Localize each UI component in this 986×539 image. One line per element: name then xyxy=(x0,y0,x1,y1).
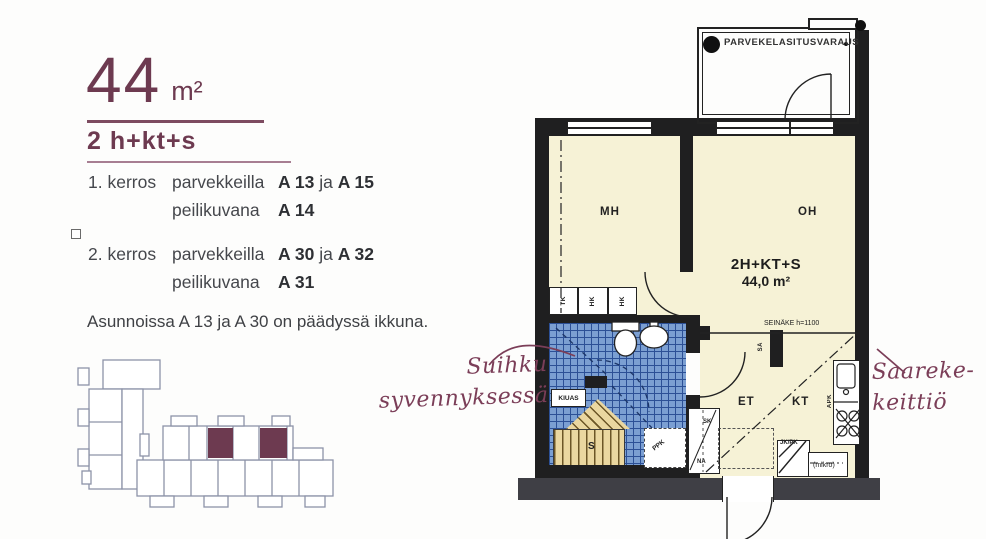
area-headline: 44 m² xyxy=(86,50,203,111)
floor-1-word: parvekkeilla xyxy=(172,172,278,193)
wall-bottom xyxy=(518,478,880,500)
closet-hk2: HK xyxy=(608,287,637,315)
balcony-corner-post xyxy=(855,20,866,31)
floor-1-mirror-code: A 14 xyxy=(278,200,374,221)
jkpk-label: JK/PK xyxy=(780,440,798,446)
list-bullet-square xyxy=(71,229,81,239)
apartment-title: 2H+KT+S 44,0 m² xyxy=(706,256,826,289)
annotation-kitchen-line1: Saareke- xyxy=(871,355,974,388)
hall-floor xyxy=(680,272,693,315)
balcony-railing-bar xyxy=(808,18,858,30)
closet-hk1: HK xyxy=(578,287,607,315)
closet-row: TK HK HK xyxy=(549,287,637,315)
closet-tk: TK xyxy=(549,287,578,315)
floor-2-word: parvekkeilla xyxy=(172,244,278,265)
divider-rule-bottom xyxy=(87,161,291,163)
floor-1-rows: 1. kerros parvekkeilla A 13 ja A 15 peil… xyxy=(88,172,374,221)
apk-label: APK xyxy=(827,394,833,408)
divider-rule-top xyxy=(87,120,264,123)
highlighted-unit-2 xyxy=(260,428,287,458)
wall-oh-et-junction xyxy=(693,326,710,340)
kitchen-counter xyxy=(833,360,860,445)
annotation-kitchen-line2: keittiö xyxy=(872,386,975,419)
na-label: NA xyxy=(697,459,706,465)
annotation-shower: Suihku syvennyksessä xyxy=(367,349,549,417)
sk-label: SK xyxy=(703,419,711,425)
kiuas-box: KIUAS xyxy=(551,389,586,407)
site-plan xyxy=(58,352,350,514)
balcony-column xyxy=(703,36,720,53)
highlighted-unit-1 xyxy=(208,428,233,458)
kiuas-label: KIUAS xyxy=(558,395,578,402)
entry-door-arc xyxy=(725,497,772,539)
floor-1-word2: peilikuvana xyxy=(172,200,278,221)
end-window-note: Asunnoissa A 13 ja A 30 on päädyssä ikku… xyxy=(87,312,428,332)
hall-reservation-dashed xyxy=(718,428,774,469)
sa-label: SÄ xyxy=(758,342,764,351)
entry-door-threshold xyxy=(722,476,774,502)
area-value: 44 xyxy=(86,50,161,111)
apartment-type-label: 2 h+kt+s xyxy=(87,127,196,156)
balcony-label: PARVEKELASITUSVARAUS xyxy=(724,37,859,48)
area-unit: m² xyxy=(171,76,202,107)
floor-2-mirror-code: A 31 xyxy=(278,272,374,293)
room-label-kt: KT xyxy=(792,396,809,408)
floor-1-label: 1. kerros xyxy=(88,172,172,193)
wall-left xyxy=(535,118,549,478)
floor-1-codes: A 13 ja A 15 xyxy=(278,172,374,193)
brochure-page: 44 m² 2 h+kt+s 1. kerros parvekkeilla A … xyxy=(0,0,986,539)
washer-reservation-box xyxy=(644,428,686,468)
wall-shower-stub xyxy=(585,376,607,388)
mikro-label: (mikro) xyxy=(813,462,835,469)
wall-bath-top xyxy=(549,315,686,323)
apartment-code: 2H+KT+S xyxy=(706,256,826,273)
room-label-et: ET xyxy=(738,396,755,408)
room-label-mh: MH xyxy=(600,206,620,218)
partition-label: SEINÄKE h=1100 xyxy=(764,320,819,327)
apartment-area: 44,0 m² xyxy=(706,273,826,289)
floor-2-label: 2. kerros xyxy=(88,244,172,265)
window-mh xyxy=(567,121,652,135)
balcony-door-threshold xyxy=(790,121,834,135)
wall-sa-stub xyxy=(770,330,783,367)
room-label-oh: OH xyxy=(798,206,817,218)
annotation-kitchen: Saareke- keittiö xyxy=(871,355,975,419)
floor-2-rows: 2. kerros parvekkeilla A 30 ja A 32 peil… xyxy=(88,244,374,293)
annotation-shower-line2: syvennyksessä xyxy=(368,380,549,417)
room-label-sauna: S xyxy=(588,441,596,452)
wall-mh-oh-divider xyxy=(680,136,693,272)
floor-2-codes: A 30 ja A 32 xyxy=(278,244,374,265)
floor-2-word2: peilikuvana xyxy=(172,272,278,293)
room-oh-floor xyxy=(693,136,855,332)
window-oh xyxy=(716,121,790,135)
